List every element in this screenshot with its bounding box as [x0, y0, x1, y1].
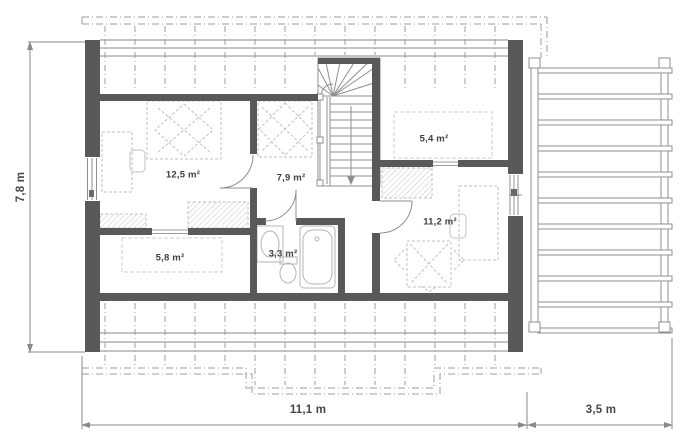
room-area-label-bathroom: 3,3 m²	[269, 249, 298, 260]
wardrobe-symbol-room-right	[382, 168, 432, 198]
room-area-label-right: 11,2 m²	[423, 217, 457, 228]
door-swing-room-right	[380, 201, 412, 233]
staircase	[317, 58, 380, 186]
pergola-beams	[538, 68, 672, 333]
wardrobe-strip-bedroom	[100, 214, 146, 228]
pergola-post-left	[531, 60, 538, 332]
wardrobe-symbol-bedroom	[188, 202, 248, 228]
floor-plan: 12,5 m² 7,9 m² 5,4 m² 11,2 m² 5,8 m² 3,3…	[0, 0, 700, 439]
rafter-grid	[105, 26, 495, 385]
desk-symbol-bedroom	[102, 132, 145, 192]
room-area-label-bottom-left: 5,8 m²	[156, 253, 185, 264]
balcony-door-right-wall	[508, 174, 523, 216]
roof-eaves-outline	[82, 17, 547, 394]
table-symbol-room-right	[394, 241, 464, 292]
exterior-walls	[85, 40, 523, 352]
balcony-pergola	[529, 58, 672, 333]
dimension-label-terrace: 3,5 m	[586, 404, 616, 416]
door-swing-bathroom	[265, 190, 296, 221]
door-swing-bedroom	[220, 155, 253, 188]
desk-symbol-room-right	[450, 186, 498, 260]
dimension-label-width: 11,1 m	[290, 404, 326, 416]
pergola-post-right	[661, 60, 668, 332]
floor-plan-drawing	[0, 0, 700, 439]
dimension-label-depth: 7,8 m	[15, 172, 27, 202]
walls	[85, 40, 523, 352]
room-area-label-hall: 7,9 m²	[277, 173, 306, 184]
bathtub-symbol	[300, 226, 335, 288]
bottom-wall	[96, 293, 523, 301]
room-area-label-top-right: 5,4 m²	[420, 134, 449, 145]
window-left-wall	[85, 157, 100, 201]
knee-wall-lines	[100, 40, 508, 351]
bed-symbol-hall	[258, 101, 312, 157]
bed-symbol-bedroom	[147, 101, 221, 159]
room-area-label-bedroom-left: 12,5 m²	[166, 170, 200, 181]
